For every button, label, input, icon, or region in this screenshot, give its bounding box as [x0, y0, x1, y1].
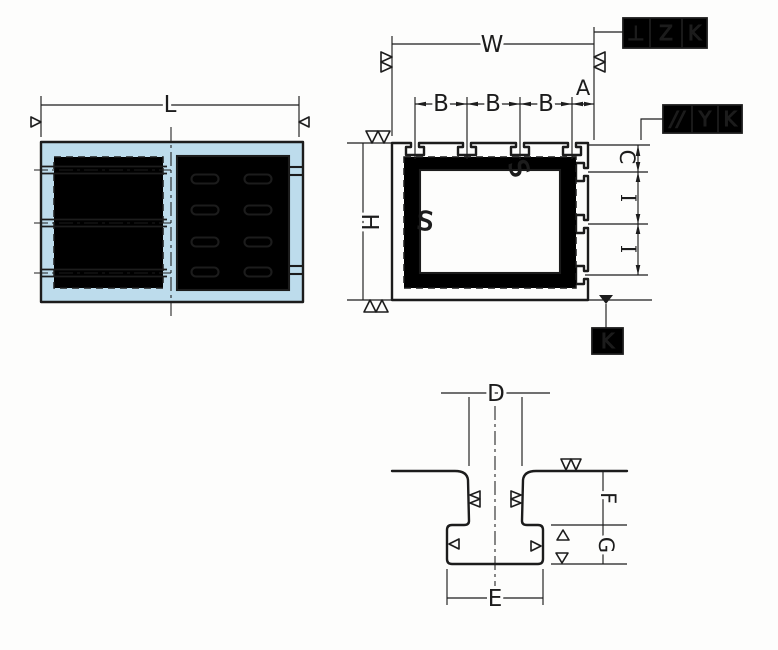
dim-label-I: I: [616, 245, 640, 253]
oval-slot: [245, 206, 272, 215]
arrowhead: [561, 102, 572, 107]
plan-view: S S W: [347, 27, 652, 354]
dim-label-L: L: [164, 92, 177, 118]
surface-finish-double-triangle: [594, 52, 605, 72]
dim-label-D: D: [487, 381, 505, 407]
dimension-C-I-chain: C I I: [585, 145, 650, 275]
dimension-G: G: [594, 525, 618, 564]
arrowhead: [467, 102, 478, 107]
arrowhead: [636, 172, 641, 182]
dimension-D: D: [441, 381, 550, 466]
tolerance-zone-label: Z: [659, 21, 673, 45]
surface-finish-triangle: [449, 539, 459, 549]
fcf-leader: [641, 119, 663, 140]
arrowhead: [415, 102, 426, 107]
datum-label: K: [601, 329, 615, 353]
oval-slot: [192, 206, 219, 215]
dim-label-F: F: [596, 492, 620, 504]
arrowhead: [572, 102, 583, 107]
dim-label-B: B: [433, 91, 449, 117]
arrowhead: [456, 102, 467, 107]
dim-label-A: A: [576, 76, 591, 100]
oval-slot: [245, 268, 272, 277]
oval-slot: [245, 175, 272, 184]
oval-slot: [192, 238, 219, 247]
parallelism-icon: //: [668, 107, 686, 131]
oval-slot: [192, 268, 219, 277]
arrowhead: [636, 214, 641, 224]
drawing-root: L S S W: [31, 18, 742, 612]
arrowhead: [509, 102, 520, 107]
surface-finish-triangle: [531, 541, 541, 551]
front-view: L: [31, 92, 309, 317]
datum-ref-label: K: [688, 21, 702, 45]
surface-finish-double-triangle: [366, 131, 390, 143]
tolerance-zone-label: Y: [698, 107, 712, 131]
datum-K: K: [588, 295, 652, 354]
surface-finish-triangle: [556, 553, 568, 563]
surface-finish-double-triangle: [381, 52, 392, 72]
table-opening: [420, 170, 560, 273]
t-slot-profile: [392, 471, 627, 564]
surface-finish-double-triangle: [470, 491, 480, 507]
arrowhead: [636, 224, 641, 234]
dimension-L: L: [31, 92, 309, 137]
oval-slot: [245, 238, 272, 247]
dimension-H: H: [347, 131, 392, 312]
dim-label-H: H: [356, 213, 382, 230]
fcf-parallelism: // Y K: [641, 105, 742, 140]
dimension-F: F: [596, 471, 620, 525]
section-view: D E F G: [391, 381, 627, 612]
perpendicularity-icon: ⊥: [627, 21, 644, 45]
surface-finish-triangle: [299, 117, 309, 127]
engineering-drawing-page: L S S W: [0, 0, 778, 650]
dim-label-E: E: [488, 586, 503, 612]
arrowhead: [520, 102, 531, 107]
dim-label-B: B: [538, 91, 554, 117]
dim-label-B: B: [485, 91, 501, 117]
datum-ref-label: K: [723, 107, 737, 131]
dim-label-W: W: [481, 32, 504, 58]
surface-finish-triangle: [31, 117, 41, 127]
dim-label-I: I: [616, 194, 640, 202]
surface-finish-double-triangle: [511, 491, 521, 507]
oval-slot: [192, 175, 219, 184]
surface-finish-double-triangle: [561, 459, 581, 470]
dim-label-G: G: [594, 537, 618, 553]
surface-finish-double-triangle: [364, 300, 388, 312]
t-slot-table-drawing: L S S W: [0, 0, 778, 650]
surface-finish-triangle: [557, 530, 569, 540]
fcf-perpendicularity: ⊥ Z K: [594, 18, 707, 48]
section-material: [391, 471, 613, 583]
arrowhead: [636, 265, 641, 275]
arrowhead: [584, 102, 594, 106]
surface-mark-s: S: [415, 206, 435, 238]
dim-label-C: C: [615, 150, 639, 165]
